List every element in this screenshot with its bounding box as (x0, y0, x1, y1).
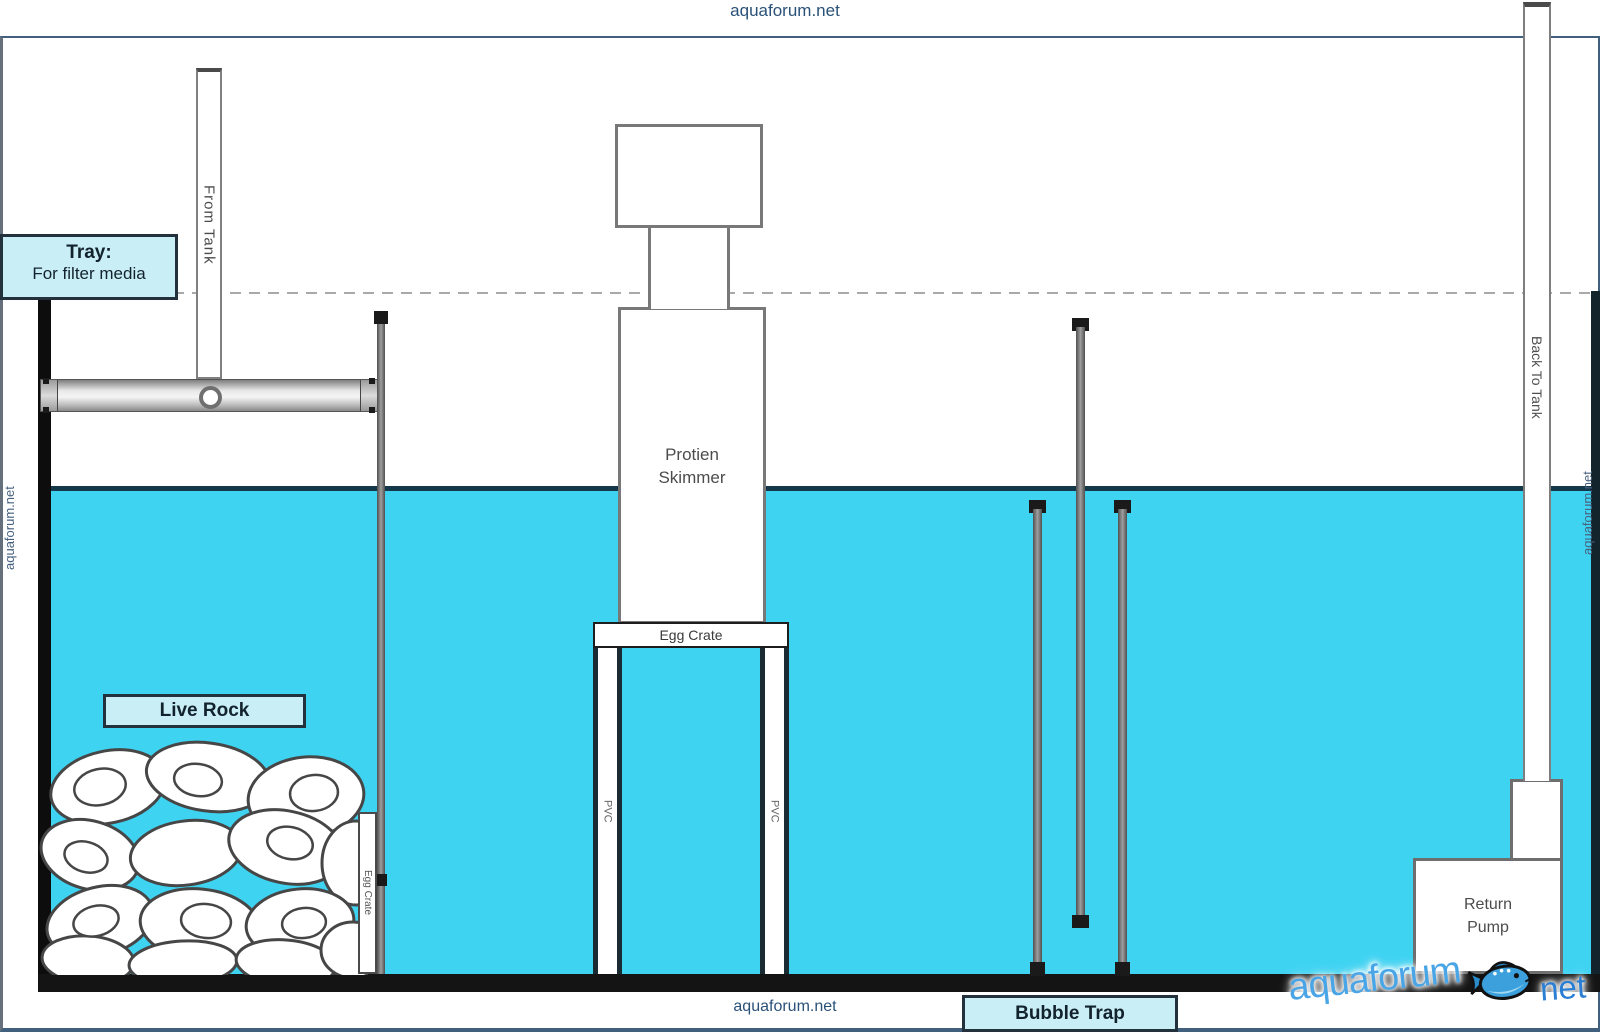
filter-tray (40, 379, 378, 412)
skimmer-body-label: Protien Skimmer (658, 443, 725, 489)
tray-label-subtitle: For filter media (3, 264, 175, 284)
watermark-left: aquaforum.net (2, 452, 18, 570)
baffle-left-foot (1030, 962, 1045, 976)
live-rock-label: Live Rock (103, 694, 306, 728)
watermark-right: aquaforum.net (1580, 437, 1596, 555)
tray-end-cap-right (360, 380, 377, 411)
logo-net-text: net (1539, 967, 1587, 1008)
tray-label-title: Tray: (3, 242, 175, 264)
return-pump-label: Return Pump (1464, 893, 1512, 939)
watermark-top: aquaforum.net (0, 1, 1570, 21)
pump-outlet-connector (1510, 779, 1563, 861)
tray-support-rod-bolt (376, 874, 387, 886)
tray-bolt (43, 407, 49, 413)
egg-crate-platform-label: Egg Crate (659, 627, 722, 643)
egg-crate-vertical-label: Egg Crate (360, 814, 375, 972)
tank-wall-right (1591, 291, 1600, 992)
bubble-trap-baffle-right (1118, 509, 1127, 974)
bubble-trap-baffle-left (1033, 509, 1042, 974)
back-to-tank-pipe-label: Back To Tank (1525, 307, 1549, 447)
from-tank-pipe: From Tank (196, 68, 222, 379)
egg-crate-platform: Egg Crate (593, 622, 789, 648)
tray-label: Tray: For filter media (0, 234, 178, 300)
egg-crate-vertical: Egg Crate (358, 812, 377, 974)
watermark-bottom: aquaforum.net (685, 998, 885, 1016)
bubble-trap-label: Bubble Trap (962, 995, 1178, 1032)
tray-bolt (369, 407, 375, 413)
pvc-leg-left: PVC (593, 648, 622, 974)
pvc-leg-right-label: PVC (765, 648, 784, 974)
tray-center-ring (199, 386, 222, 409)
tray-support-rod-cap (374, 311, 388, 324)
tank-rim-dashed (40, 292, 1592, 294)
tray-end-cap-left (41, 380, 58, 411)
skimmer-cup (615, 124, 763, 228)
pvc-leg-left-label: PVC (598, 648, 617, 974)
fish-icon (1459, 951, 1541, 1011)
tray-bolt (43, 378, 49, 384)
bubble-trap-baffle-middle (1076, 327, 1085, 919)
skimmer-neck (648, 225, 730, 309)
from-tank-pipe-label: From Tank (198, 72, 220, 377)
tray-bolt (369, 378, 375, 384)
baffle-right-foot (1115, 962, 1130, 976)
skimmer-body: Protien Skimmer (618, 307, 766, 624)
sump-diagram: aquaforum.net From Tank (0, 0, 1600, 1035)
baffle-middle-bottom-cap (1072, 915, 1089, 928)
pvc-leg-right: PVC (760, 648, 789, 974)
live-rock-pile (38, 735, 368, 975)
back-to-tank-pipe: Back To Tank (1523, 2, 1551, 781)
